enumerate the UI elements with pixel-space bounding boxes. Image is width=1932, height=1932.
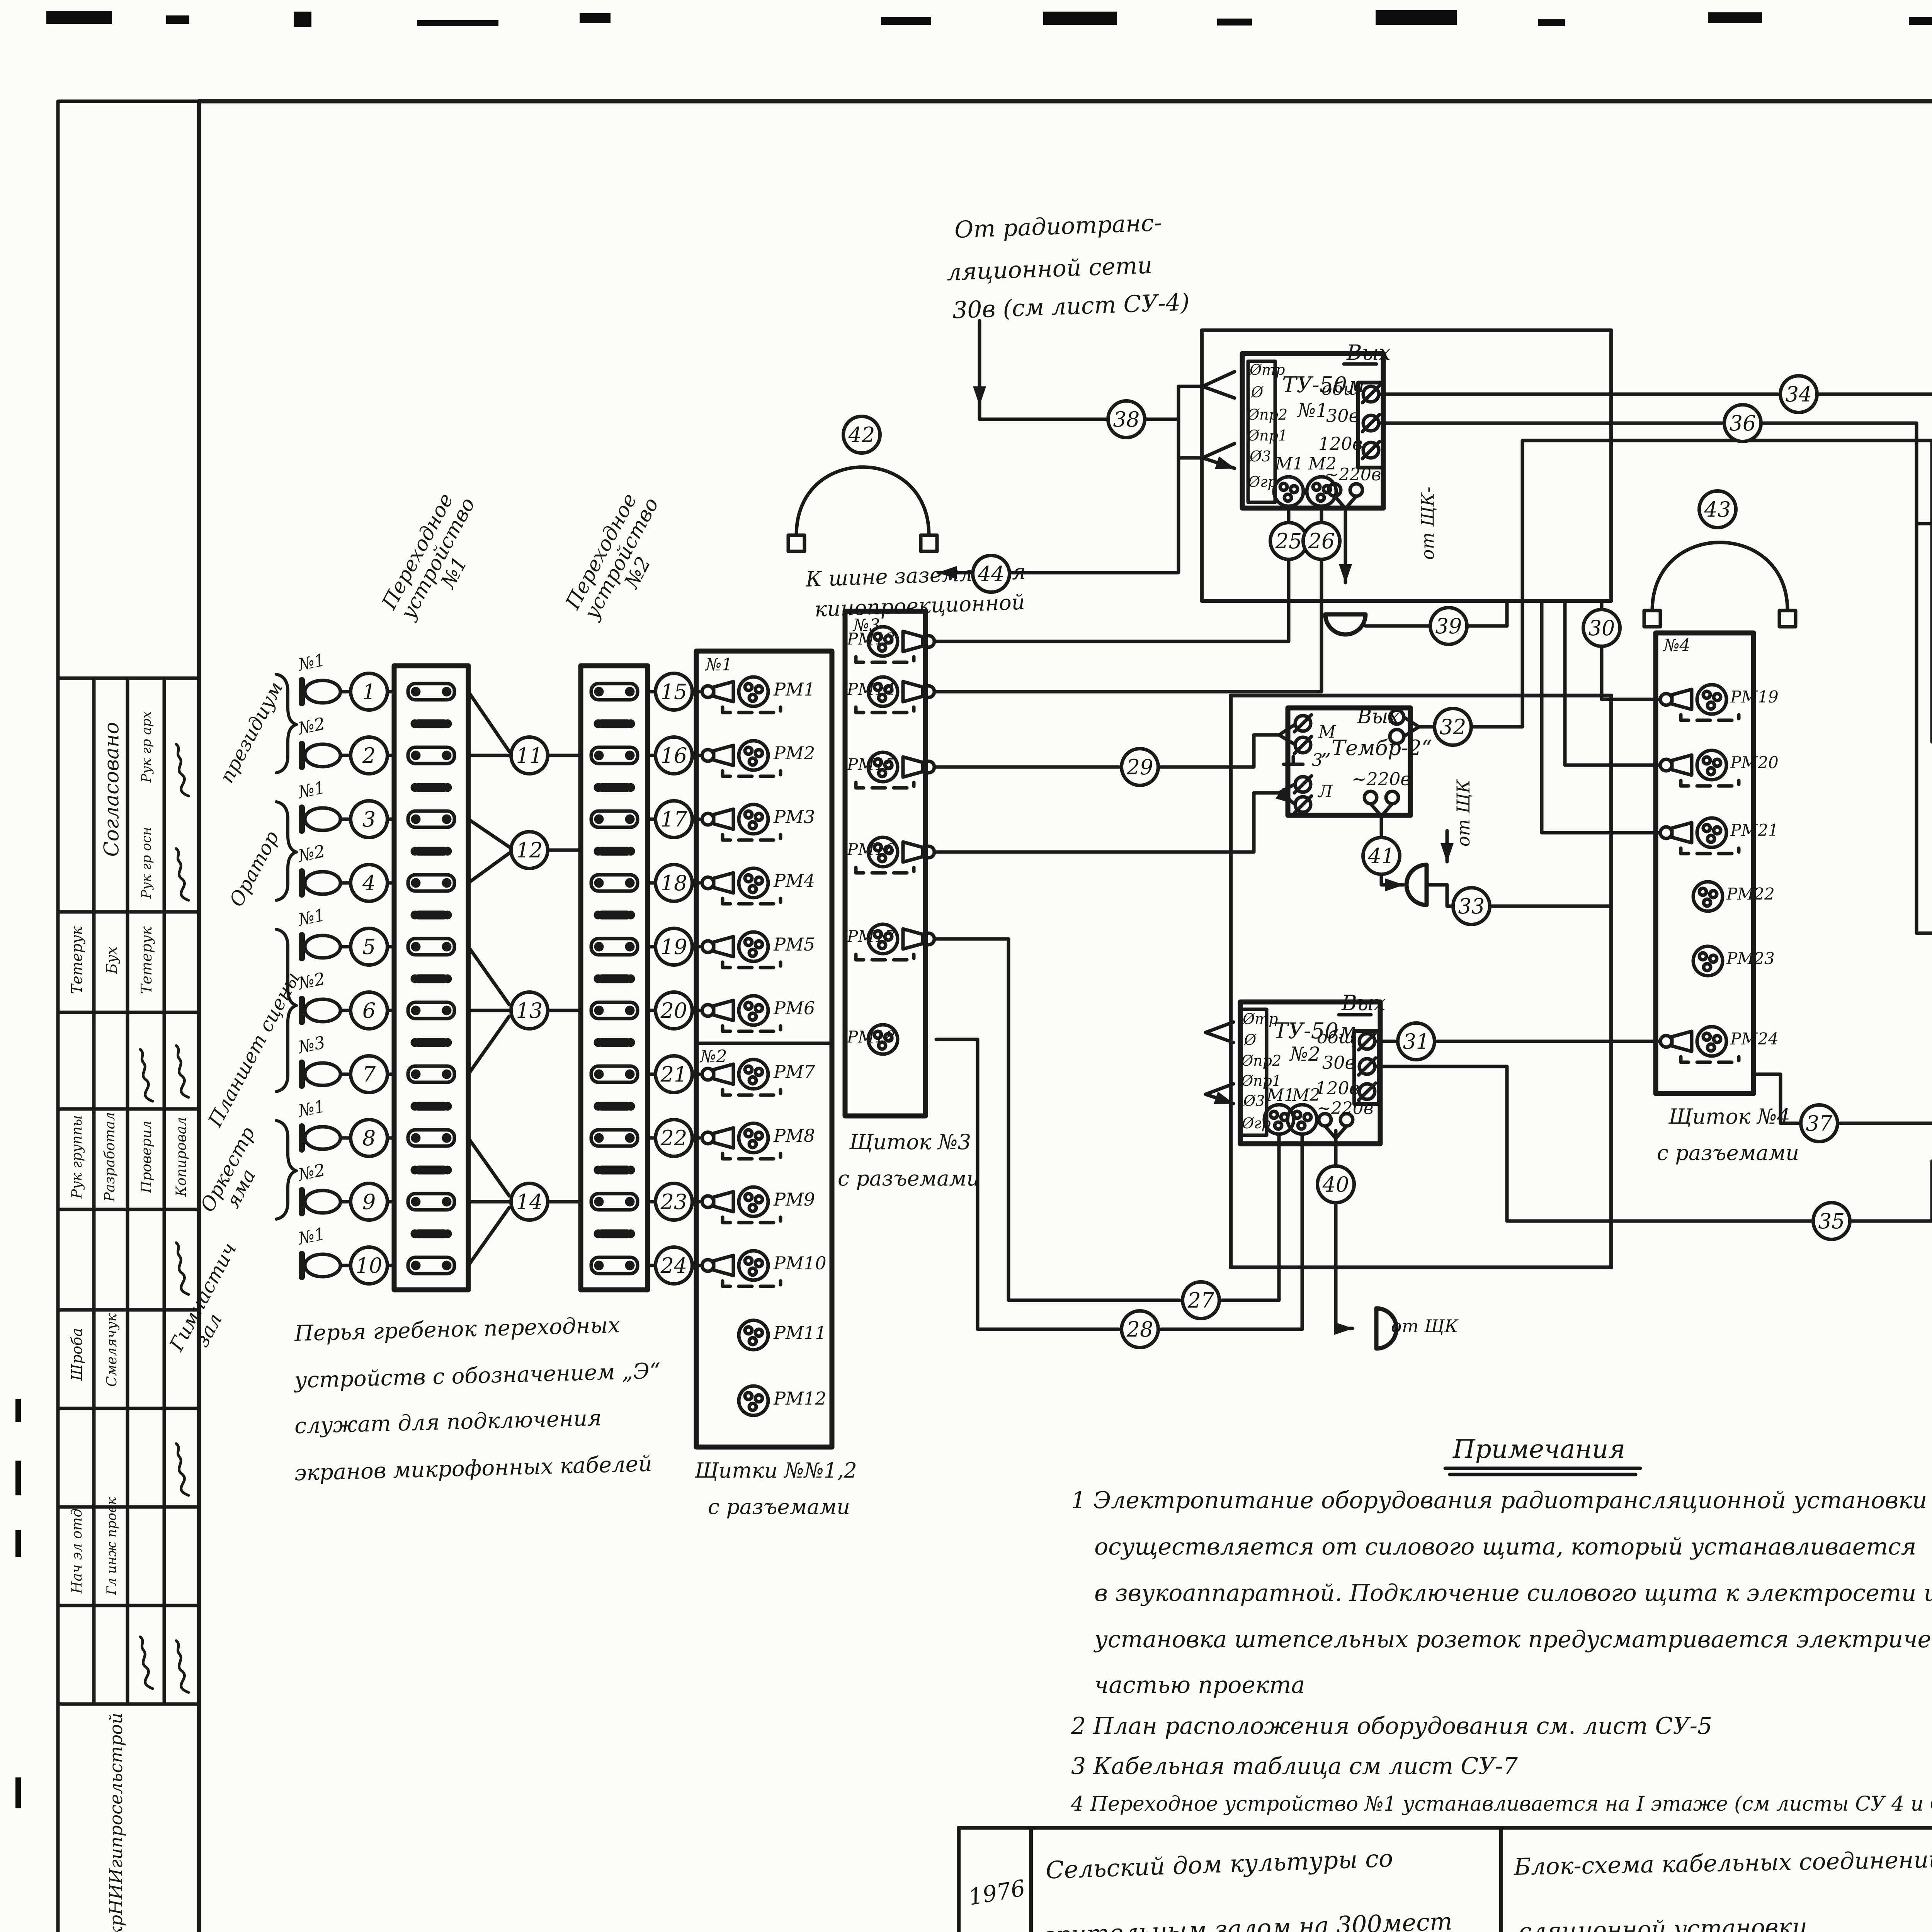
note-1e: частью проекта	[1094, 1673, 1305, 1697]
pm-label: РМ2	[774, 744, 815, 762]
wire-tag-38: 38	[1106, 399, 1146, 439]
pm-label: РМ21	[1730, 822, 1779, 839]
amp1-m1: М1	[1275, 455, 1303, 473]
pm-label: РМ18	[847, 1029, 895, 1046]
pm-label: РМ1	[774, 680, 815, 699]
amp1-term: Øпр1	[1247, 428, 1287, 444]
pm-label: РМ16	[847, 841, 895, 858]
pm-label: РМ12	[774, 1389, 827, 1408]
wire-tag-17: 17	[654, 799, 694, 839]
note-1d: установка штепсельных розеток предусматр…	[1094, 1628, 1932, 1652]
wire-tag-27: 27	[1181, 1280, 1221, 1320]
wire-tag-26: 26	[1301, 521, 1342, 561]
stamp-organization: УкрНИИгипросельстрой	[107, 1684, 125, 1932]
tembr-220: ~220в	[1352, 770, 1411, 788]
panel4-caption1: Щиток №4	[1668, 1106, 1790, 1128]
panel4-caption2: с разъемами	[1657, 1142, 1799, 1164]
wire-tag-8: 8	[349, 1118, 389, 1158]
wire-tag-43: 43	[1697, 489, 1738, 529]
amp1-shk-note: от ЩК-	[1418, 486, 1437, 560]
notes-title: Примечания	[1453, 1436, 1625, 1463]
amp2-term: Øпр2	[1241, 1053, 1281, 1069]
amp2-out-120: 120в	[1315, 1079, 1360, 1097]
amp2-out-common: общ	[1317, 1028, 1356, 1046]
pm-label: РМ17	[847, 928, 895, 945]
pm-label: РМ20	[1730, 754, 1779, 771]
wire-tag-7: 7	[349, 1054, 389, 1094]
wire-tag-22: 22	[654, 1118, 694, 1158]
wire-tag-35: 35	[1811, 1201, 1852, 1241]
amp1-out-120: 120в	[1318, 434, 1363, 453]
pm-label: РМ14	[847, 681, 895, 698]
wire-tag-32: 32	[1433, 707, 1473, 747]
pm-label: РМ23	[1726, 950, 1775, 967]
amp1-out-label: Вых	[1347, 342, 1391, 364]
stamp-role3: Нач эл отд	[70, 1507, 85, 1595]
wire-tag-21: 21	[654, 1054, 694, 1094]
amp1-term: Øгр	[1248, 474, 1277, 490]
pm-label: РМ22	[1726, 886, 1775, 903]
amp2-220: ~220в	[1317, 1100, 1373, 1117]
pm-label: РМ9	[774, 1190, 815, 1209]
wire-tag-11: 11	[509, 735, 549, 776]
amp1-term: Øпр2	[1247, 407, 1287, 423]
note-4: 4 Переходное устройство №1 устанавливает…	[1071, 1794, 1932, 1815]
wire-tag-14: 14	[509, 1182, 549, 1222]
amp2-out-label: Вых	[1342, 992, 1386, 1014]
amp2-m2: М2	[1292, 1087, 1320, 1104]
wire-tag-6: 6	[349, 990, 389, 1031]
wire-tag-28: 28	[1120, 1309, 1160, 1349]
wire-tag-34: 34	[1779, 374, 1819, 414]
wire-tag-39: 39	[1429, 606, 1469, 646]
amp1-number: №1	[1298, 400, 1328, 421]
wire-tag-29: 29	[1120, 747, 1160, 787]
stamp-post1: Рук группы	[70, 1111, 85, 1203]
wire-tag-24: 24	[654, 1245, 694, 1286]
amp2-out-30: 30в	[1322, 1053, 1355, 1072]
amp1-out-30: 30в	[1326, 406, 1359, 425]
wire-tag-20: 20	[654, 990, 694, 1031]
pm-label: РМ24	[1730, 1031, 1779, 1048]
wire-tag-31: 31	[1396, 1021, 1436, 1061]
amp1-term: Ø3	[1250, 449, 1271, 464]
wire-tag-40: 40	[1316, 1164, 1356, 1204]
pm-label: РМ5	[774, 935, 815, 954]
pm-label: РМ11	[774, 1323, 827, 1342]
wire-tag-44: 44	[971, 554, 1011, 594]
tembr-out: Вых	[1357, 706, 1400, 728]
stamp-agreed: Согласовано	[102, 733, 123, 857]
note-2: 2 План расположения оборудования см. лис…	[1071, 1714, 1712, 1738]
wire-tag-15: 15	[654, 672, 694, 712]
stamp-post2: Разработал	[103, 1111, 117, 1203]
panel3-caption2: с разъемами	[838, 1168, 980, 1190]
amp2-term: Øпр1	[1241, 1073, 1281, 1089]
stamp-post4: Копировал	[174, 1111, 189, 1203]
stamp-name2: Бух	[104, 931, 120, 989]
pm-label: РМ4	[774, 871, 815, 890]
note-3: 3 Кабельная таблица см лист СУ-7	[1071, 1754, 1518, 1779]
stamp-role-b: Рук гр осн	[140, 813, 154, 913]
drawing-sheet: 87 От радиотранс- ляционной сети 30в (см…	[0, 0, 1932, 1932]
stamp-role4: Гл инж проек	[105, 1498, 119, 1595]
pm-label: РМ15	[847, 756, 895, 773]
amp2-term: Ø	[1244, 1032, 1256, 1048]
panel12-section1: №1	[706, 656, 733, 674]
stamp-post3: Проверил	[139, 1111, 154, 1203]
wire-tag-13: 13	[509, 990, 549, 1031]
stamp-fam1: Шроба	[70, 1316, 85, 1393]
amp1-220: ~220в	[1325, 466, 1381, 484]
tembr-l: Л	[1318, 783, 1333, 801]
pm-label: РМ6	[774, 999, 815, 1017]
wire-tag-1: 1	[349, 672, 389, 712]
wire-tag-9: 9	[349, 1182, 389, 1222]
pm-label: РМ3	[774, 808, 815, 826]
panel3-caption1: Щиток №3	[849, 1131, 971, 1153]
amp1-term: Øтр	[1250, 362, 1285, 378]
amp2-term: Øгр	[1242, 1116, 1271, 1131]
wire-tag-36: 36	[1723, 403, 1763, 443]
wire-tag-5: 5	[349, 927, 389, 967]
amp2-shk-note: от ЩК	[1391, 1317, 1458, 1335]
wire-tag-10: 10	[349, 1245, 389, 1286]
amp1-out-common: общ	[1321, 379, 1361, 398]
wire-tag-18: 18	[654, 863, 694, 903]
note-1a: 1 Электропитание оборудования радиотранс…	[1071, 1488, 1927, 1513]
stamp-name3: Тетерук	[139, 922, 155, 999]
note-1b: осуществляется от силового щита, который…	[1094, 1535, 1917, 1559]
title-sheetname2: сляционной установки	[1519, 1915, 1808, 1932]
tembr-title: „Тембр-2“	[1321, 737, 1432, 759]
wire-tag-37: 37	[1799, 1103, 1839, 1143]
tembr-g: 3	[1312, 752, 1323, 769]
amp1-term: Ø	[1251, 385, 1263, 400]
stamp-role-a: Рук гр арх	[140, 697, 154, 797]
pm-label: РМ19	[1730, 689, 1779, 706]
transition-devices	[276, 666, 699, 1290]
stamp-fam2: Смелячук	[105, 1308, 119, 1393]
wire-tag-19: 19	[654, 927, 694, 967]
wire-tag-16: 16	[654, 735, 694, 776]
tembr-shk-note: от ЩК	[1454, 779, 1473, 847]
amp2-term: Ø3	[1243, 1094, 1265, 1109]
panel12-caption1: Щитки №№1,2	[695, 1460, 857, 1482]
panel12-section2: №2	[700, 1048, 727, 1066]
wire-tag-42: 42	[842, 415, 882, 455]
panel4-number: №4	[1663, 637, 1690, 655]
wire-tag-4: 4	[349, 863, 389, 903]
amp2-number: №2	[1290, 1044, 1320, 1065]
pm-label: РМ10	[774, 1254, 827, 1272]
amplifier-1	[1179, 330, 1611, 601]
panel12-caption2: с разъемами	[708, 1496, 850, 1518]
panel3-number: №3	[853, 617, 880, 634]
amp2-term: Øтр	[1243, 1012, 1278, 1027]
wire-tag-3: 3	[349, 799, 389, 839]
tembr-m: М	[1318, 723, 1336, 741]
pm-label: РМ7	[774, 1063, 815, 1081]
pm-label: РМ8	[774, 1126, 815, 1145]
wire-tag-33: 33	[1451, 886, 1492, 926]
wire-tag-2: 2	[349, 735, 389, 776]
wire-tag-23: 23	[654, 1182, 694, 1222]
wiring	[936, 321, 1932, 1349]
tembr-block	[1231, 696, 1611, 1267]
wire-tag-12: 12	[509, 830, 549, 870]
wire-tag-41: 41	[1361, 836, 1401, 876]
note-1c: в звукоаппаратной. Подключение силового …	[1094, 1581, 1932, 1605]
stamp-name1: Тетерук	[70, 922, 85, 999]
wire-tag-30: 30	[1582, 608, 1622, 648]
